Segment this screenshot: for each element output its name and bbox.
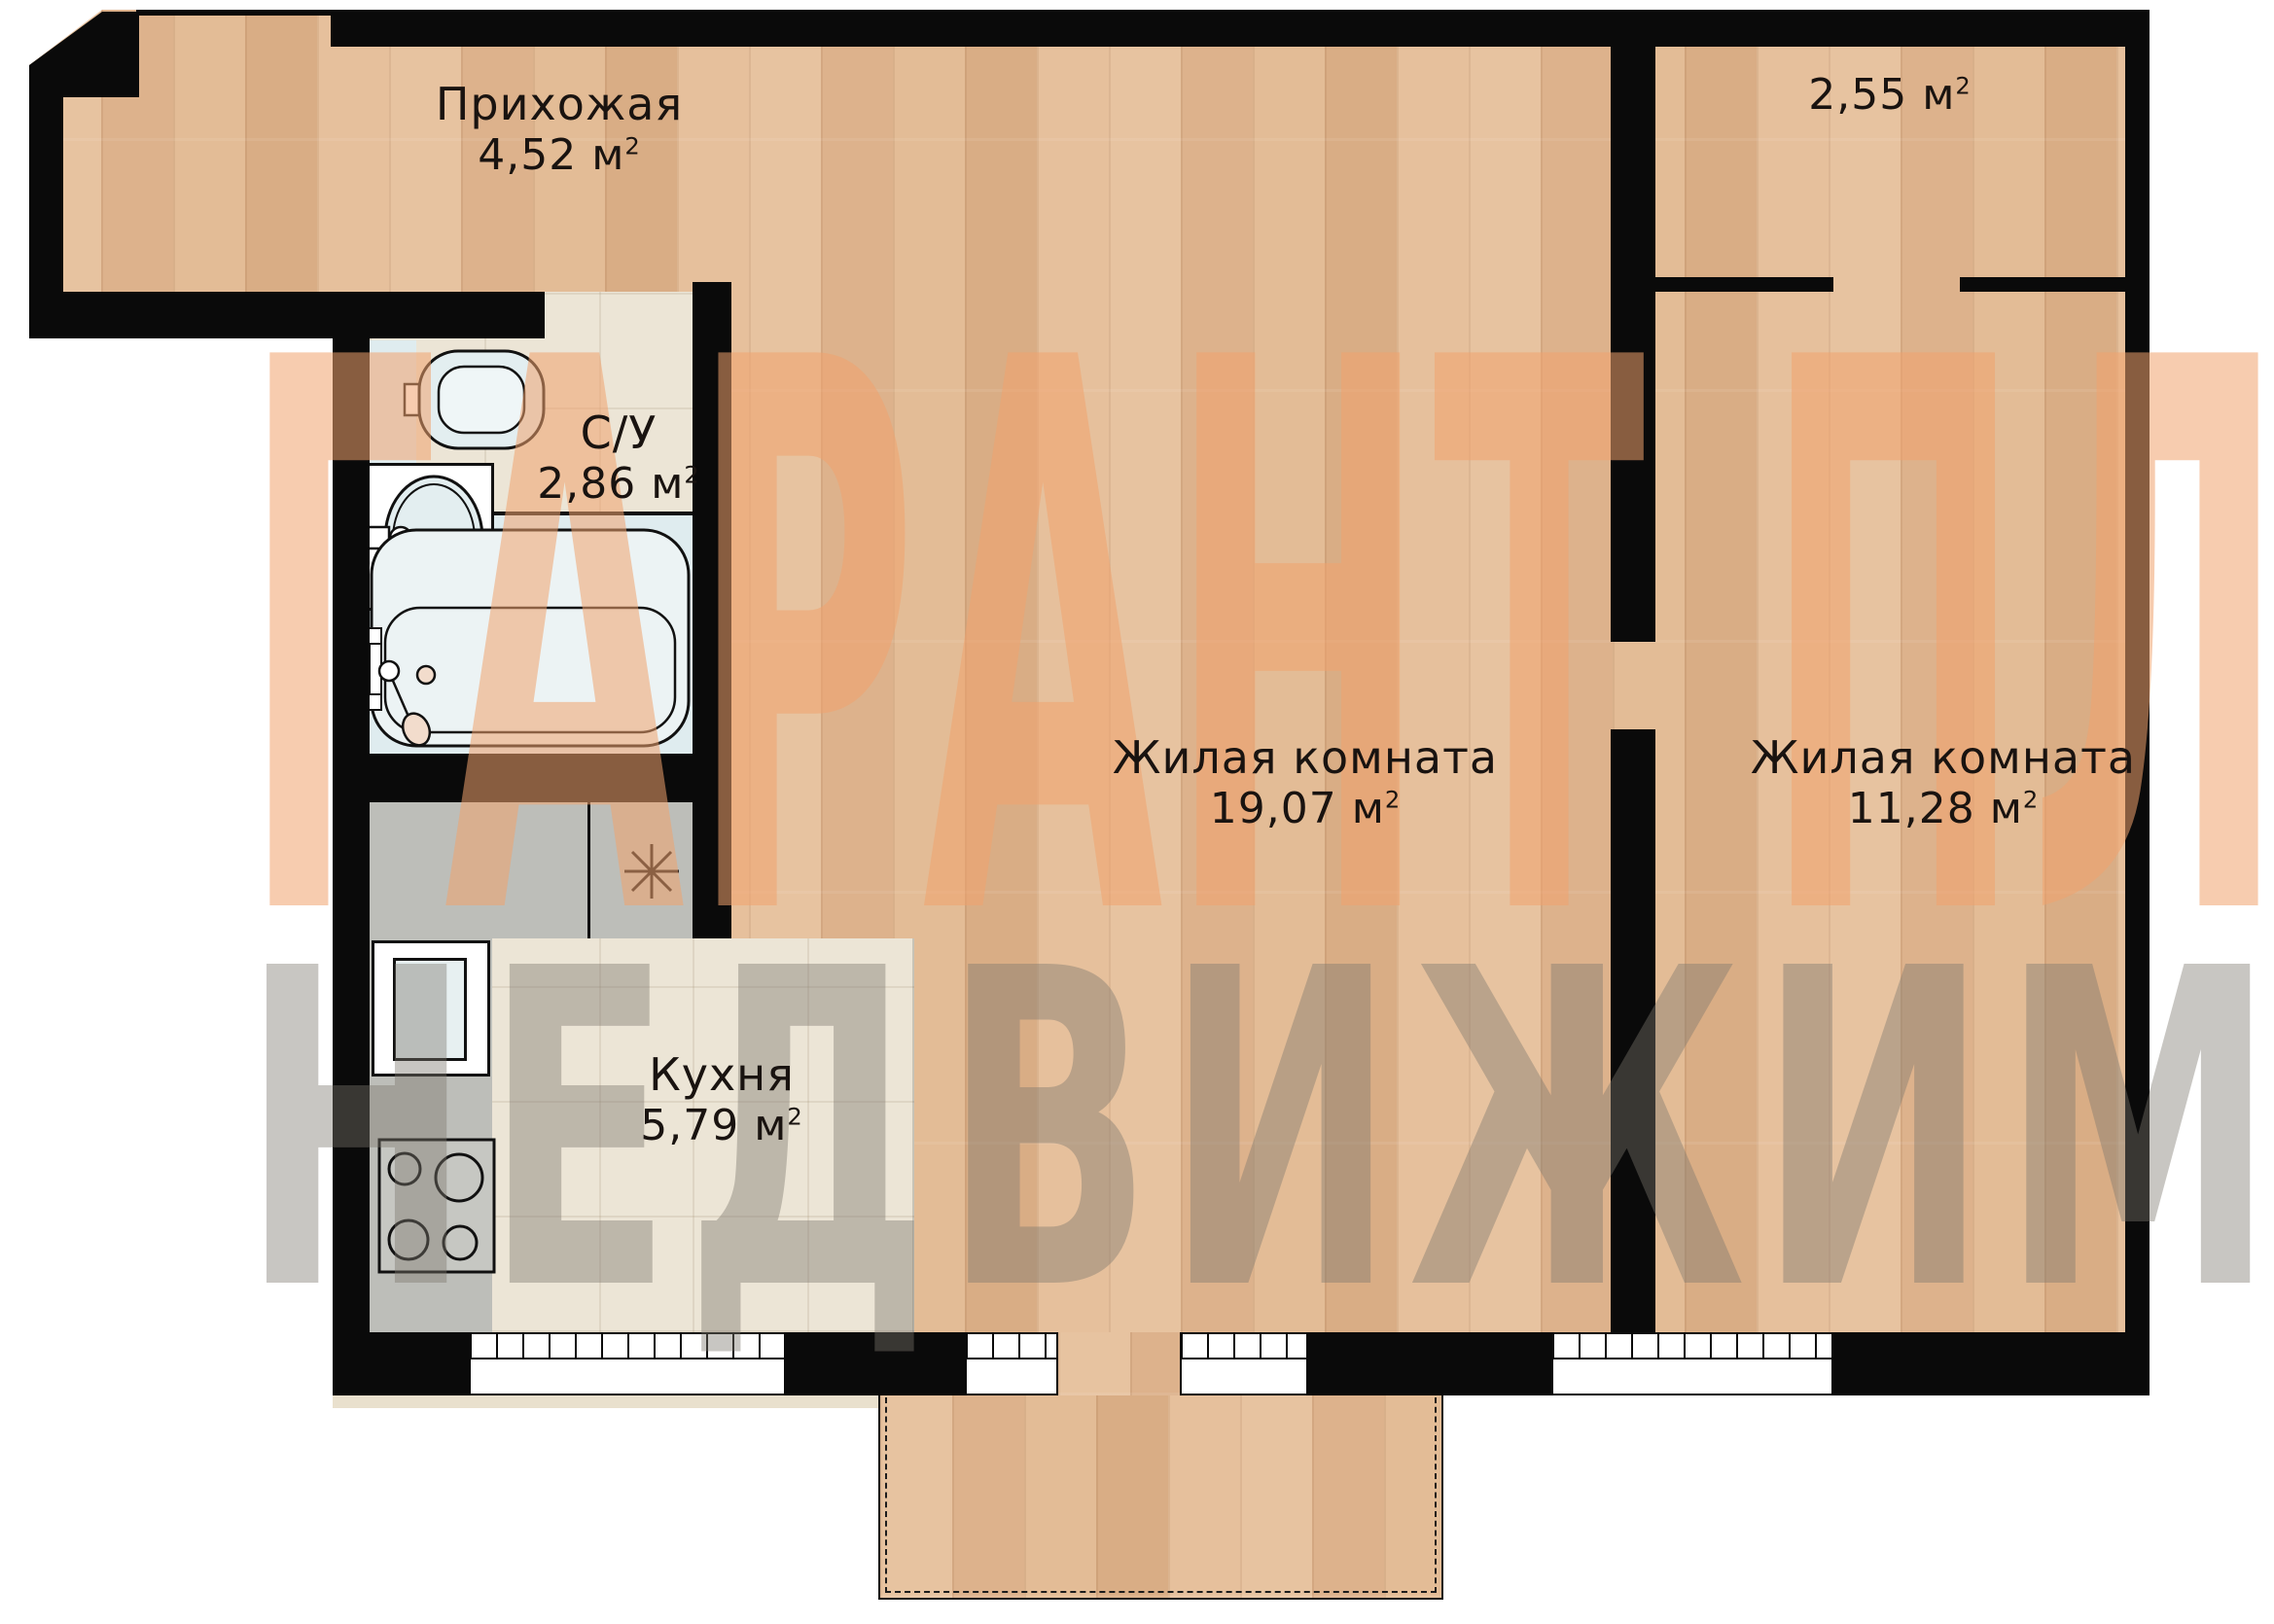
living1-window-left [965,1332,1058,1395]
room-label-loggia: 2,55 м2 [1695,70,2084,121]
room-label-wc: С/У 2,86 м2 [438,406,799,510]
room-label-living2: Жилая комната 11,28 м2 [1700,731,2186,834]
wall-right [2125,10,2150,1395]
floor-plan: ГАРАНТ ПЛЮС НЕДВИЖИМОСТЬ Прихожая 4,52 м… [0,0,2274,1624]
stove-icon [377,1138,496,1274]
room-label-living1: Жилая комната 19,07 м2 [1062,731,1548,834]
wall-bottom-1 [333,1332,469,1395]
wall-top [331,10,2150,47]
kitchen-window [469,1332,786,1395]
wall-top-thin [136,10,338,16]
exterior-sill [333,1395,878,1408]
vent-asterisk-icon [622,842,681,900]
wall-middle-lower [1611,729,1655,1332]
wall-hallway-bottom [29,292,545,338]
kitchen-floor-edge [912,938,914,1332]
balcony-door-opening [1058,1332,1180,1395]
living1-window-right [1180,1332,1308,1395]
wall-loggia-left [1655,277,1833,292]
wall-loggia-right [1960,277,2125,292]
wall-middle-upper [1611,47,1655,642]
exterior-left [0,335,333,1624]
wall-bottom-2 [786,1332,965,1395]
living2-window [1551,1332,1833,1395]
kitchen-sink-icon [393,958,467,1061]
bathtub-zone-edge [491,512,693,515]
kitchen-counter-divider [587,802,590,938]
room-label-kitchen: Кухня 5,79 м2 [547,1048,897,1151]
balcony-railing [885,1397,1437,1593]
wall-wc-right [693,282,731,938]
room-label-hallway: Прихожая 4,52 м2 [365,78,754,181]
wall-bottom-4 [1833,1332,2150,1395]
exterior-top [0,0,338,10]
wall-left-main [333,292,370,1395]
bathtub-icon [362,523,693,751]
wall-wc-kitchen [333,754,731,802]
wall-bottom-3 [1308,1332,1551,1395]
balcony [878,1395,1443,1600]
